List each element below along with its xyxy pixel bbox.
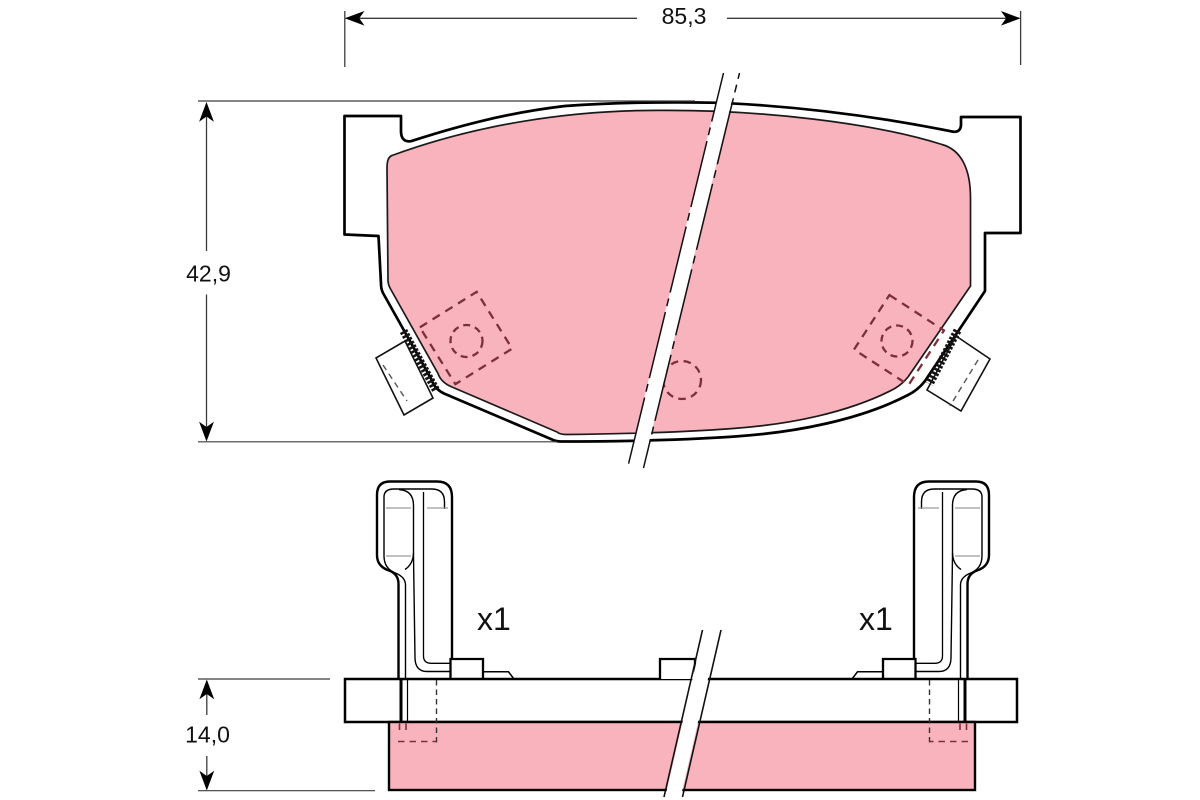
svg-text:14,0: 14,0 xyxy=(185,722,230,748)
svg-text:x1: x1 xyxy=(477,601,511,637)
svg-text:x1: x1 xyxy=(859,601,893,637)
svg-text:85,3: 85,3 xyxy=(662,3,707,29)
svg-text:42,9: 42,9 xyxy=(186,261,231,287)
